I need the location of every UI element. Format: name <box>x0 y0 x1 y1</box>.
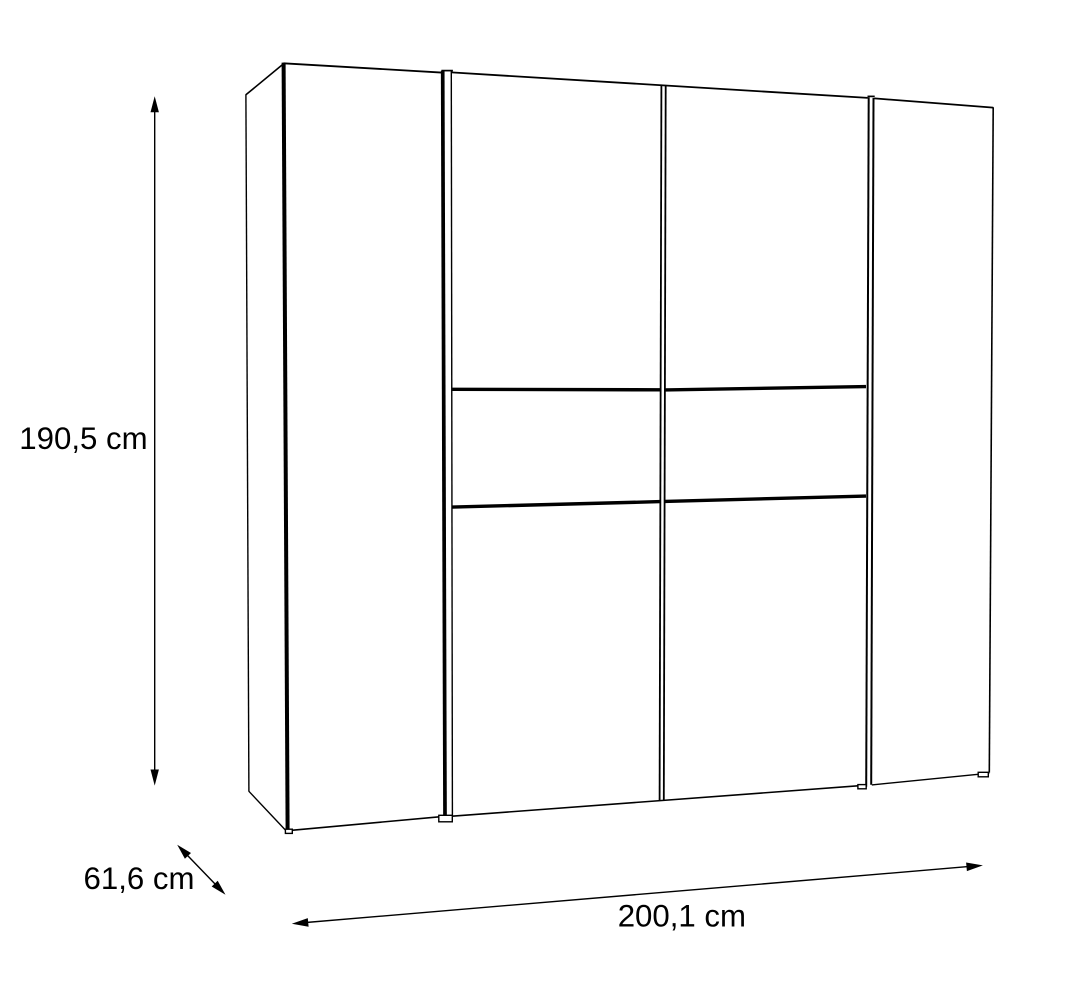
svg-text:190,5 cm: 190,5 cm <box>19 421 147 456</box>
svg-text:200,1 cm: 200,1 cm <box>618 899 746 934</box>
svg-text:61,6 cm: 61,6 cm <box>84 861 195 896</box>
